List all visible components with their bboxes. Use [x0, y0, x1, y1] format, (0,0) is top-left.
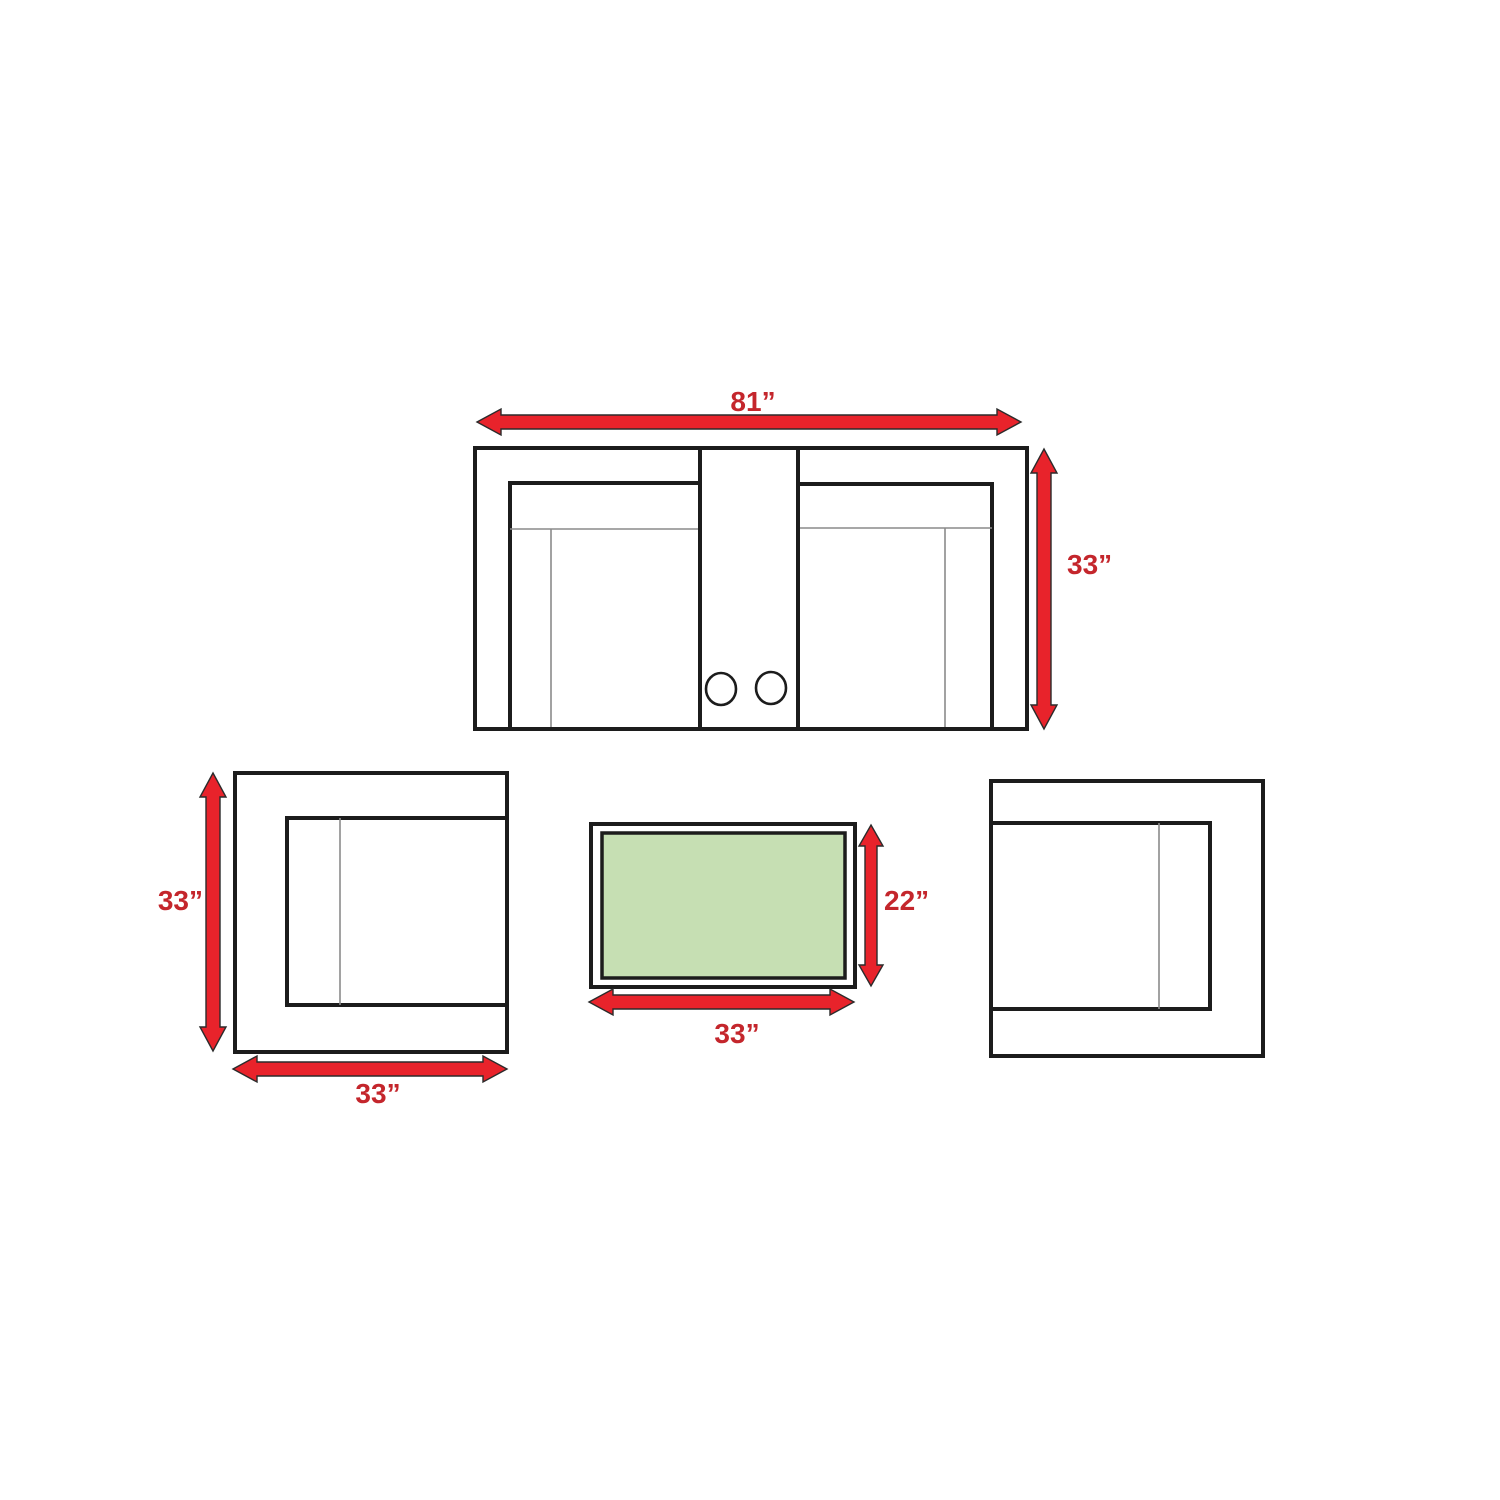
loveseat-width-label: 81”: [730, 386, 775, 417]
diagram-canvas: 81” 33” 33” 33” 22” 33”: [0, 0, 1500, 1500]
armchair-left-top-view: 33” 33”: [158, 773, 507, 1109]
armchair-depth-arrow: [200, 773, 226, 1051]
coffee-table-glass-top: [602, 833, 845, 978]
coffee-table-width-label: 33”: [714, 1018, 759, 1049]
armchair-depth-label: 33”: [158, 885, 203, 916]
coffee-table-height-arrow: [859, 825, 883, 986]
coffee-table-width-arrow: [589, 989, 854, 1015]
loveseat-depth-label: 33”: [1067, 549, 1112, 580]
loveseat-top-view: 81” 33”: [475, 386, 1112, 729]
coffee-table-top-view: 22” 33”: [589, 824, 929, 1049]
cup-holder-left: [706, 673, 736, 705]
loveseat-depth-arrow: [1031, 449, 1057, 729]
furniture-dimension-diagram: 81” 33” 33” 33” 22” 33”: [0, 0, 1500, 1500]
coffee-table-height-label: 22”: [884, 885, 929, 916]
armchair-width-label: 33”: [355, 1078, 400, 1109]
cup-holder-right: [756, 672, 786, 704]
armchair-right-top-view: [991, 781, 1263, 1056]
armchair-left-outer-frame: [235, 773, 507, 1052]
